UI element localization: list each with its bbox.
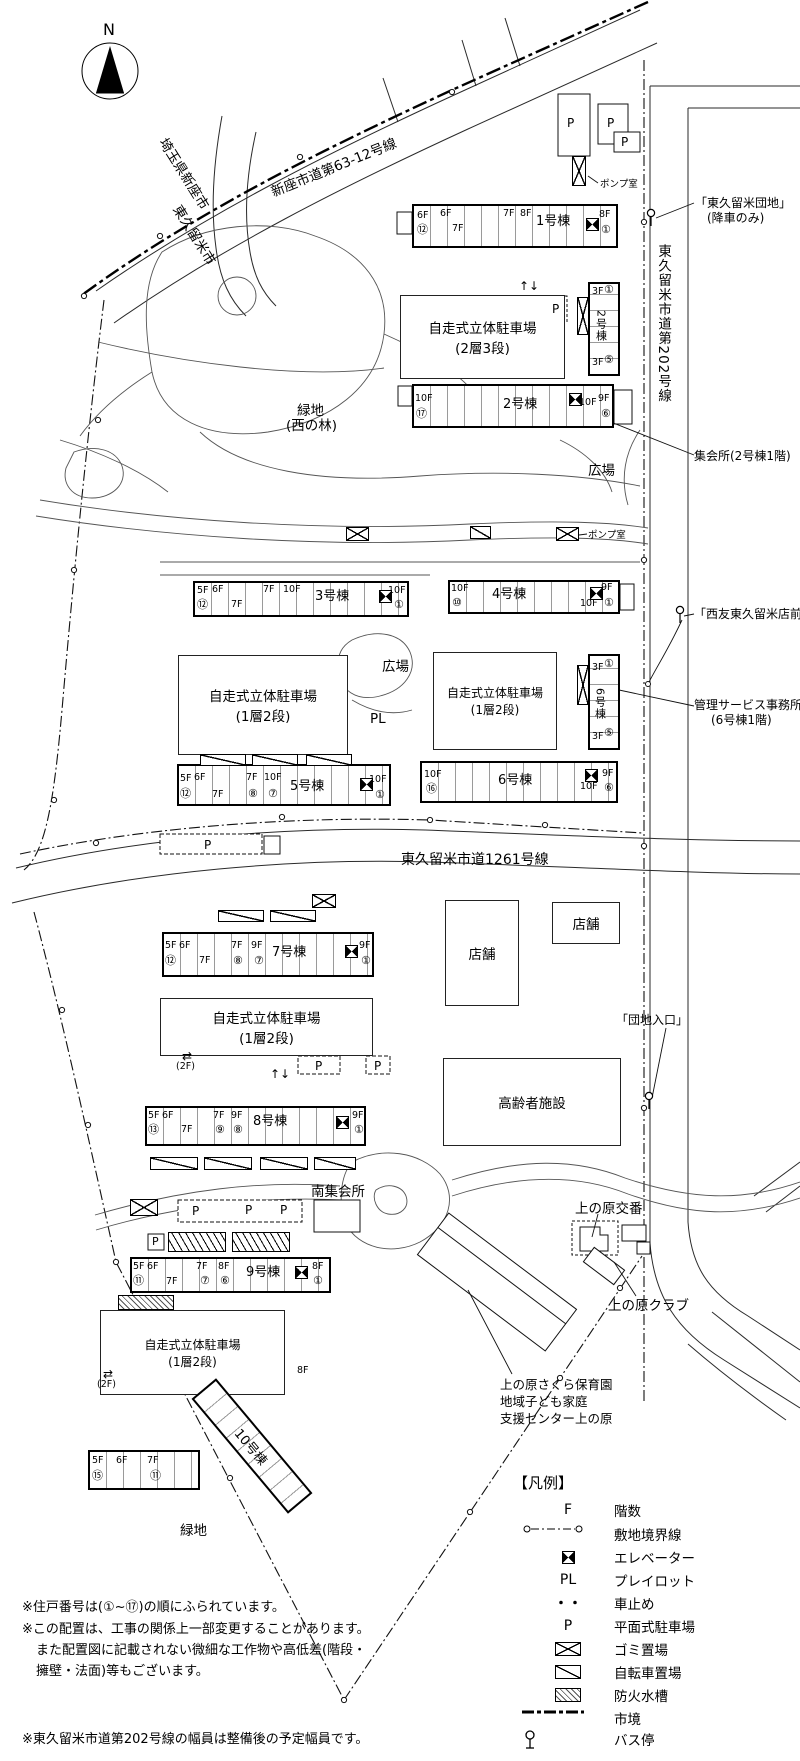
floor-label: 6F: [212, 585, 224, 595]
unit-number: ①: [313, 1275, 323, 1287]
note-2b: また配置図に記載されない微細な工作物や高低差(階段・: [36, 1639, 366, 1658]
floor-label: 9F: [359, 941, 371, 951]
p-mark: P: [607, 117, 614, 130]
legend-garbage: ゴミ置場: [522, 1639, 668, 1659]
unit-number: ⑫: [165, 955, 176, 967]
floor-label: 6F: [179, 941, 191, 951]
building-name: 6号棟: [498, 774, 532, 788]
mgmt-office-label: 管理サービス事務所: [694, 699, 800, 712]
garbage-icon: [312, 894, 336, 908]
floor-label: 5F: [148, 1111, 160, 1121]
legend-bicycle: 自転車置場: [522, 1662, 682, 1682]
legend-floors: F 階数: [522, 1500, 641, 1520]
building-10-west-wing: [88, 1450, 200, 1490]
unit-number: ⑪: [133, 1275, 144, 1287]
p-mark: P: [315, 1060, 322, 1073]
floor-label: 7F: [231, 600, 243, 610]
elevator-icon: [360, 778, 373, 791]
p-mark: P: [280, 1204, 287, 1217]
bicycle-rack: [252, 754, 298, 766]
unit-number: ⑦: [268, 788, 278, 800]
elevator-icon: [336, 1116, 349, 1129]
floor-label: 9F: [251, 941, 263, 951]
unit-number: ①: [604, 597, 614, 609]
elevator-icon: [379, 590, 392, 603]
floor-label: 7F: [231, 941, 243, 951]
unit-number: ⑯: [426, 783, 437, 795]
bicycle-rack: [270, 910, 316, 922]
building-5: [177, 764, 391, 806]
unit-number: ⑪: [150, 1470, 161, 1482]
unit-number: ⑩: [452, 597, 462, 609]
building-name: 3号棟: [315, 590, 349, 604]
p-mark: P: [621, 136, 628, 149]
unit-number: ⑫: [197, 599, 208, 611]
club-label: 上の原クラブ: [608, 1299, 689, 1313]
unit-number: ①: [375, 789, 385, 801]
plaza-label: 広場: [588, 464, 615, 478]
legend-bus-stop: バス停: [522, 1729, 655, 1749]
bicycle-rack: [150, 1157, 198, 1170]
bus-stop-icon: [522, 1729, 538, 1749]
unit-number: ⑬: [148, 1124, 159, 1136]
floor-label: 5F: [197, 586, 209, 596]
road-label-202: 東久留米市道第202号線: [656, 244, 670, 414]
elevator-icon: [562, 1551, 575, 1564]
unit-number: ⑥: [604, 782, 614, 794]
parking-deck-south: 自走式立体駐車場 (1層2段): [100, 1310, 285, 1395]
elevator-icon: [585, 769, 598, 782]
bicycle-rack: [306, 754, 352, 766]
building-name: 2号棟: [595, 310, 607, 352]
garbage-icon: [572, 156, 586, 186]
legend-fire: 防火水槽: [522, 1685, 668, 1705]
p-mark: P: [192, 1205, 199, 1218]
building-name: 1号棟: [536, 215, 570, 229]
compass-n: N: [103, 22, 115, 39]
note-1: ※住戸番号は(①~⑰)の順にふられています。: [22, 1596, 285, 1615]
p-mark: P: [552, 303, 559, 316]
bus-st-danchi: 「東久留米団地」: [695, 197, 791, 210]
unit-number: ⑥: [601, 408, 611, 420]
legend-flat-parking: P 平面式駐車場: [522, 1616, 695, 1636]
bus-st-danchi-note: (降車のみ): [707, 212, 764, 225]
floor-label: 8F: [297, 1366, 309, 1376]
floor-label: 5F: [92, 1456, 104, 1466]
garbage-icon: [555, 1642, 581, 1656]
site-plan: 自走式立体駐車場 (2層3段) 自走式立体駐車場 (1層2段) 自走式立体駐車場…: [0, 0, 800, 1761]
unit-number: ⑨: [215, 1124, 225, 1136]
floor-label: 5F: [165, 941, 177, 951]
mgmt-office-label-2: (6号棟1階): [711, 714, 772, 727]
bus-st-seiyu: 「西友東久留米店前」: [694, 608, 800, 621]
building-name: 7号棟: [272, 946, 306, 960]
site-plan-linework: [0, 0, 800, 1761]
legend-elevator: エレベーター: [522, 1547, 695, 1567]
unit-number: ①: [601, 224, 611, 236]
legend-playlot: PL プレイロット: [522, 1570, 695, 1590]
note-2c: 擁壁・法面)等もございます。: [36, 1660, 209, 1679]
legend-title: 【凡例】: [513, 1476, 573, 1492]
floor-label: 3F: [592, 358, 604, 368]
bicycle-rack: [200, 754, 246, 766]
floor-label: 5F: [133, 1262, 145, 1272]
floor-label: 10F: [580, 599, 598, 609]
bicycle-shed: [232, 1232, 290, 1252]
floor-label: 7F: [199, 956, 211, 966]
unit-number: ①: [604, 284, 614, 296]
bicycle-icon: [470, 526, 491, 539]
elevator-icon: [590, 587, 603, 600]
unit-number: ⑫: [180, 788, 191, 800]
nursery-label-3: 支援センター上の原: [500, 1412, 613, 1425]
green-west-label: 緑地: [297, 404, 324, 418]
garbage-icon: [556, 527, 579, 541]
floor-label: 6F: [440, 209, 452, 219]
meeting-hall-label: 集会所(2号棟1階): [694, 450, 791, 463]
building-name: 8号棟: [253, 1115, 287, 1129]
bus-st-iriguchi: 「団地入口」: [616, 1014, 688, 1027]
floor-label: 7F: [263, 585, 275, 595]
floor-label: 7F: [212, 790, 224, 800]
floor-label: 8F: [218, 1262, 230, 1272]
floor-label: 6F: [417, 211, 429, 221]
floor-label: 7F: [246, 773, 258, 783]
floor-label: 7F: [196, 1262, 208, 1272]
legend-city-border: 市境: [522, 1708, 641, 1728]
south-hall-label: 南集会所: [311, 1185, 365, 1199]
unit-number: ⑥: [220, 1275, 230, 1287]
floor-label: 6F: [194, 773, 206, 783]
bicycle-rack: [218, 910, 264, 922]
elderly-facility: 高齢者施設: [443, 1058, 621, 1146]
floor-label: 10F: [451, 584, 469, 594]
floor-label: 10F: [424, 770, 442, 780]
green-west-label-2: (西の林): [286, 419, 337, 433]
garbage-icon: [577, 665, 589, 705]
unit-number: ⑰: [416, 408, 427, 420]
pump-room-label-2: ポンプ室: [588, 531, 626, 541]
koban-label: 上の原交番: [575, 1202, 643, 1216]
unit-number: ①: [394, 599, 404, 611]
floor-label: 7F: [147, 1456, 159, 1466]
floor-label: 10F: [283, 585, 301, 595]
shop-small: 店舗: [552, 902, 620, 944]
elevator-icon: [586, 218, 599, 231]
floor-label: 9F: [231, 1111, 243, 1121]
bicycle-rack: [314, 1157, 356, 1170]
floor-label: 9F: [602, 769, 614, 779]
north-arrow-icon: [82, 43, 138, 99]
parking-deck-east: 自走式立体駐車場 (1層2段): [433, 652, 557, 750]
green-south-label: 緑地: [180, 1524, 207, 1538]
floor-label: 3F: [592, 287, 604, 297]
note-2a: ※この配置は、工事の関係上一部変更することがあります。: [22, 1618, 370, 1637]
playlot-label: PL: [370, 712, 386, 726]
fire-cistern-icon: [555, 1688, 581, 1702]
unit-number: ⑮: [92, 1470, 103, 1482]
unit-number: ⑧: [233, 955, 243, 967]
floor-label: 7F: [181, 1125, 193, 1135]
elevator-icon: [569, 393, 582, 406]
building-name: 9号棟: [246, 1266, 280, 1280]
floor-label: 7F: [452, 224, 464, 234]
floor-label: 3F: [592, 732, 604, 742]
floor-label: 9F: [352, 1111, 364, 1121]
floor-label: 6F: [147, 1262, 159, 1272]
floor-label: 7F: [213, 1111, 225, 1121]
floor-label: 8F: [520, 209, 532, 219]
floor-label: 3F: [592, 663, 604, 673]
floor-label: 7F: [503, 209, 515, 219]
unit-number: ①: [604, 658, 614, 670]
p-mark: P: [152, 1236, 159, 1248]
bicycle-rack: [204, 1157, 252, 1170]
unit-number: ⑫: [417, 224, 428, 236]
floor-label: 6F: [162, 1111, 174, 1121]
garbage-icon: [130, 1199, 158, 1216]
p-mark: P: [245, 1204, 252, 1217]
floor-label: 8F: [599, 210, 611, 220]
garbage-icon: [346, 527, 369, 541]
floor-label: 7F: [166, 1277, 178, 1287]
note-3: ※東久留米市道第202号線の幅員は整備後の予定幅員です。: [22, 1728, 368, 1747]
floor-label: 9F: [598, 394, 610, 404]
elevator-icon: [345, 945, 358, 958]
boundary-line-icon: [522, 1524, 584, 1534]
unit-number: ⑦: [200, 1275, 210, 1287]
legend-stopper: ・・ 車止め: [522, 1593, 655, 1613]
unit-number: ⑤: [604, 727, 614, 739]
unit-number: ⑧: [248, 788, 258, 800]
bicycle-icon: [555, 1665, 581, 1679]
plaza-label-2: 広場: [382, 660, 409, 674]
nursery-label-2: 地域子ども家庭: [500, 1395, 588, 1408]
city-border-icon: [522, 1708, 584, 1716]
unit-number: ⑤: [604, 354, 614, 366]
floor-label: 10F: [580, 782, 598, 792]
building-7: [162, 932, 374, 977]
garbage-icon: [577, 297, 589, 335]
building-name: 4号棟: [492, 588, 526, 602]
p-mark: P: [204, 839, 211, 852]
building-3: [193, 581, 409, 617]
bicycle-shed: [168, 1232, 226, 1252]
unit-number: ①: [361, 955, 371, 967]
ramp-2f-label: (2F): [97, 1380, 116, 1390]
unit-number: ①: [354, 1124, 364, 1136]
nursery-label-1: 上の原さくら保育園: [500, 1378, 613, 1391]
ramp-arrows: ↑↓: [270, 1068, 290, 1081]
ramp-arrows: ↑↓: [519, 280, 539, 293]
floor-label: 10F: [264, 773, 282, 783]
bicycle-rack: [260, 1157, 308, 1170]
ramp-2f-label: (2F): [176, 1062, 195, 1072]
p-mark: P: [567, 117, 574, 130]
elevator-icon: [295, 1266, 308, 1279]
parking-deck-mid: 自走式立体駐車場 (1層2段): [160, 998, 373, 1056]
parking-deck-west: 自走式立体駐車場 (1層2段): [178, 655, 348, 755]
floor-label: 8F: [312, 1262, 324, 1272]
unit-number: ⑧: [233, 1124, 243, 1136]
p-mark: P: [374, 1060, 381, 1073]
road-label-1261: 東久留米市道1261号線: [401, 853, 549, 868]
pump-room-label: ポンプ室: [600, 180, 638, 190]
fire-cistern-icon: [118, 1295, 174, 1310]
unit-number: ⑦: [254, 955, 264, 967]
floor-label: 5F: [180, 774, 192, 784]
building-name: 5号棟: [290, 780, 324, 794]
parking-deck-2x3: 自走式立体駐車場 (2層3段): [400, 295, 565, 379]
floor-label: 6F: [116, 1456, 128, 1466]
shop-large: 店舗: [445, 900, 519, 1006]
floor-label: 10F: [415, 394, 433, 404]
building-name: 2号棟: [503, 398, 537, 412]
legend-boundary: 敷地境界線: [522, 1524, 682, 1544]
